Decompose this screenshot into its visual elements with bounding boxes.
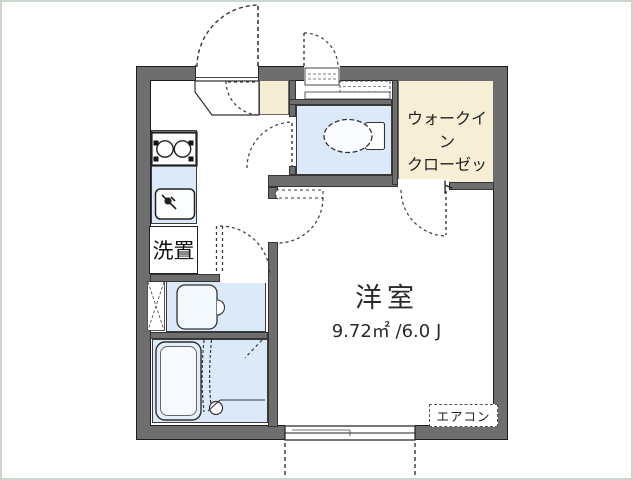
floorplan-canvas: 洗置 ウォークイン クローゼット 洋室 9.72㎡ /6.0 J エアコン — [0, 0, 633, 480]
stove-grate — [189, 157, 194, 162]
kitchen-sink-icon — [156, 189, 195, 219]
aircon-box: エアコン — [429, 404, 498, 427]
balcony-boundary-dashes — [285, 443, 415, 480]
washer-space-label: 洗置 — [153, 235, 195, 265]
stove-grate — [154, 157, 159, 162]
main-room-door-leaf — [276, 190, 323, 198]
bath-door-swing-icon — [245, 340, 262, 358]
toilet-door-swing-icon — [247, 122, 293, 168]
stove-grate — [154, 141, 159, 146]
stove-burner-icon — [157, 141, 173, 157]
washroom-door-leaf — [217, 226, 223, 273]
floorplan-linework — [2, 2, 633, 480]
toilet-icon — [324, 120, 372, 153]
window-swing-icon — [304, 33, 338, 67]
washbasin-icon — [177, 285, 217, 329]
entrance-door-swing-icon — [197, 5, 259, 67]
main-room-area-label: 9.72㎡ /6.0 J — [304, 317, 469, 343]
washroom-door-swing-icon — [220, 226, 270, 276]
main-room-door-swing-icon — [278, 198, 323, 243]
walk-in-closet-label-line2: クローゼット — [401, 153, 493, 199]
toilet-window-icon — [305, 68, 339, 85]
aircon-label: エアコン — [436, 406, 490, 425]
washbasin-faucet-icon — [217, 300, 225, 315]
stove-grate — [189, 141, 194, 146]
bath-door-fold-icon — [210, 340, 212, 412]
toilet-shelf — [305, 92, 390, 99]
washer-space-box: 洗置 — [149, 226, 198, 274]
main-room-label: 洋室 — [307, 276, 467, 315]
folding-door-x-icon — [148, 282, 164, 330]
stove-burner-icon — [174, 141, 190, 157]
bath-door-fold-icon — [202, 340, 204, 412]
walk-in-closet-label: ウォークイン クローゼット — [401, 107, 493, 199]
genkan-step — [195, 81, 259, 115]
bathtub-inner — [161, 347, 197, 416]
walk-in-closet-label-line1: ウォークイン — [401, 107, 493, 153]
